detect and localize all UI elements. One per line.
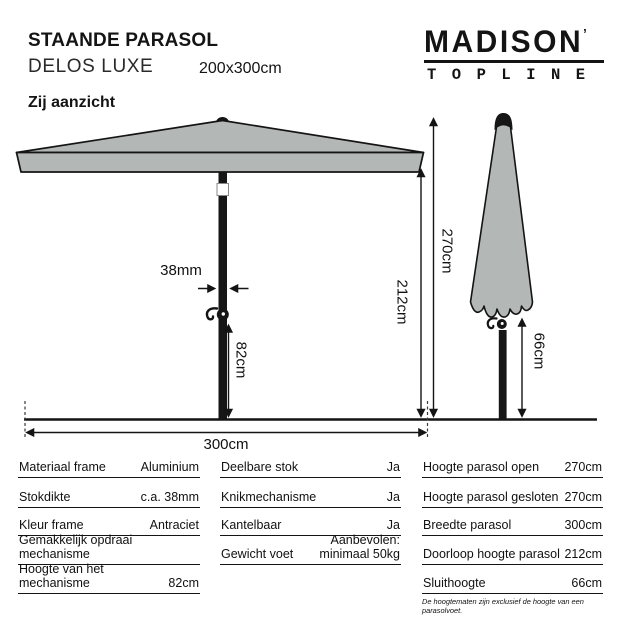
- spec-label: Knikmechanisme: [221, 490, 316, 504]
- spec-label: Materiaal frame: [19, 460, 106, 474]
- open-height-label: 270cm: [439, 228, 456, 273]
- closed-pole: [499, 330, 507, 420]
- dimension-doorloop-height: 212cm: [394, 170, 422, 416]
- spec-value: 66cm: [571, 576, 602, 590]
- spec-value: 270cm: [564, 490, 602, 504]
- spec-value: Aanbevolen:minimaal 50kg: [319, 533, 400, 561]
- table-row: Hoogte parasol gesloten 270cm: [422, 478, 603, 508]
- pole-diameter-label: 38mm: [160, 262, 202, 279]
- crank-knob-pin: [222, 312, 225, 315]
- spec-label: Breedte parasol: [423, 518, 511, 532]
- open-canopy-valance: [17, 153, 424, 173]
- spec-label: Gewicht voet: [221, 547, 293, 561]
- table-footnote: De hoogtematen zijn exclusief de hoogte …: [422, 597, 603, 615]
- sluithoogte-label: 66cm: [531, 333, 548, 370]
- spec-label: Doorloop hoogte parasol: [423, 547, 560, 561]
- spec-label: Deelbare stok: [221, 460, 298, 474]
- table-row: Deelbare stok Ja: [220, 456, 401, 478]
- spec-label: Stokdikte: [19, 490, 70, 504]
- spec-label: Hoogte parasol gesloten: [423, 490, 559, 504]
- spec-value: 212cm: [564, 547, 602, 561]
- spec-column-frame: Materiaal frame Aluminium Stokdikte c.a.…: [18, 456, 200, 594]
- open-parasol-side-view: [17, 117, 424, 420]
- spec-value: Ja: [387, 460, 400, 474]
- spec-column-heights: Hoogte parasol open 270cm Hoogte parasol…: [422, 456, 603, 615]
- spec-value: 300cm: [564, 518, 602, 532]
- spec-label: Hoogte van het mechanisme: [19, 562, 168, 590]
- spec-value: Ja: [387, 518, 400, 532]
- table-row: Sluithoogte 66cm: [422, 565, 603, 594]
- table-row: Breedte parasol 300cm: [422, 508, 603, 536]
- open-canopy-top: [17, 121, 424, 153]
- closed-canopy-cone: [471, 125, 533, 318]
- table-row: Kantelbaar Ja: [220, 508, 401, 536]
- spec-label: Kantelbaar: [221, 518, 281, 532]
- width-label: 300cm: [203, 436, 248, 453]
- spec-sheet: { "header": { "title": "STAANDE PARASOL"…: [0, 0, 620, 620]
- dimension-pole-diameter: 38mm: [160, 262, 248, 289]
- crank-handle: [207, 308, 217, 319]
- table-row: Doorloop hoogte parasol 212cm: [422, 536, 603, 565]
- table-row: Hoogte van het mechanisme 82cm: [18, 565, 200, 594]
- spec-value: c.a. 38mm: [141, 490, 199, 504]
- spec-label: Hoogte parasol open: [423, 460, 539, 474]
- spec-value: Ja: [387, 490, 400, 504]
- spec-label: Sluithoogte: [423, 576, 486, 590]
- dimension-mechanism-height: 82cm: [229, 326, 250, 417]
- table-row: Kleur frame Antraciet: [18, 508, 200, 536]
- dimension-sluithoogte: 66cm: [522, 320, 548, 417]
- closed-parasol-side-view: [471, 113, 533, 420]
- table-row: Stokdikte c.a. 38mm: [18, 478, 200, 508]
- mechanism-height-label: 82cm: [233, 342, 250, 379]
- spec-label: Gemakkelijk opdraai mechanisme: [19, 533, 199, 561]
- spec-label: Kleur frame: [19, 518, 84, 532]
- open-pole: [219, 172, 228, 420]
- table-row: Gemakkelijk opdraai mechanisme: [18, 536, 200, 565]
- closed-crank-knob-pin: [501, 322, 504, 325]
- spec-value: Antraciet: [150, 518, 199, 532]
- spec-value: Aluminium: [141, 460, 199, 474]
- table-row: Knikmechanisme Ja: [220, 478, 401, 508]
- pole-connector-sleeve: [217, 184, 229, 196]
- table-row: Materiaal frame Aluminium: [18, 456, 200, 478]
- table-row: Hoogte parasol open 270cm: [422, 456, 603, 478]
- spec-value: 82cm: [168, 576, 199, 590]
- spec-column-mechanism: Deelbare stok Ja Knikmechanisme Ja Kante…: [220, 456, 401, 565]
- dimension-open-height: 270cm: [434, 119, 456, 416]
- spec-value: 270cm: [564, 460, 602, 474]
- doorloop-height-label: 212cm: [394, 279, 411, 324]
- table-row: Gewicht voet Aanbevolen:minimaal 50kg: [220, 536, 401, 565]
- closed-crank-handle: [488, 318, 497, 328]
